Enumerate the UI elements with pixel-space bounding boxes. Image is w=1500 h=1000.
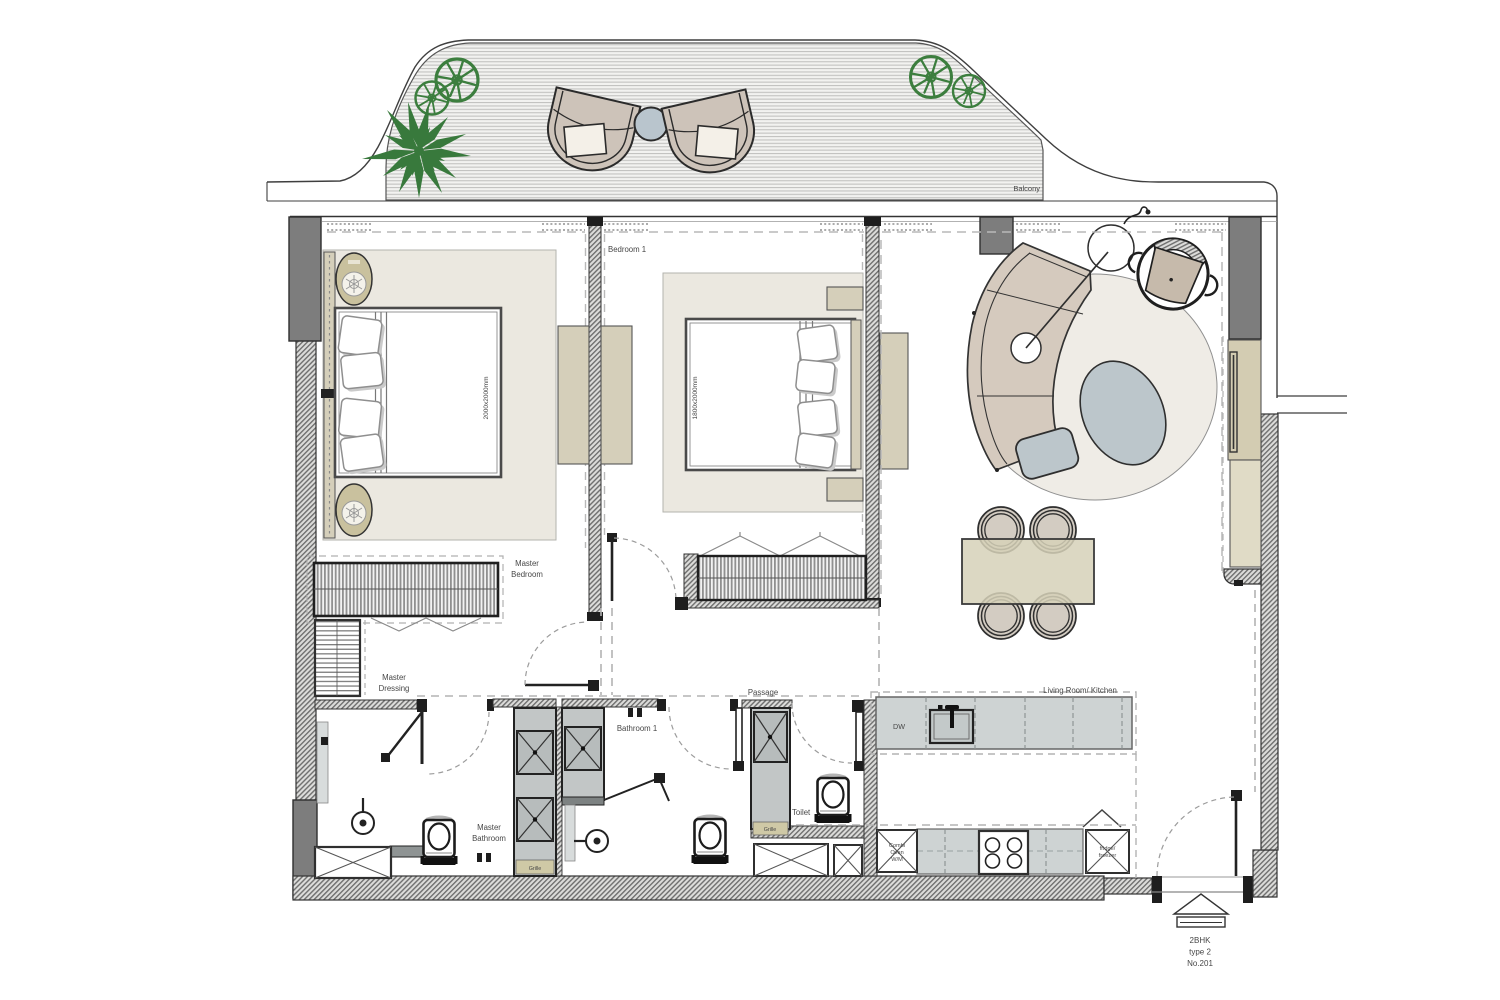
svg-text:freezer: freezer [1099, 853, 1117, 859]
svg-text:Master: Master [515, 559, 539, 568]
svg-text:DW: DW [893, 722, 905, 731]
svg-text:W/M: W/M [891, 857, 903, 863]
svg-text:2BHK: 2BHK [1190, 936, 1212, 945]
svg-text:No.201: No.201 [1187, 959, 1213, 968]
svg-text:Grille: Grille [529, 866, 542, 872]
svg-text:1800x2000mm: 1800x2000mm [692, 377, 699, 420]
svg-text:Living Room/ Kitchen: Living Room/ Kitchen [1043, 686, 1117, 695]
svg-text:type 2: type 2 [1189, 948, 1211, 957]
svg-text:Bedroom: Bedroom [511, 570, 543, 579]
svg-text:Grille: Grille [764, 827, 777, 833]
svg-text:Balcony: Balcony [1013, 184, 1040, 193]
svg-text:Passage: Passage [748, 688, 778, 697]
svg-text:2000x2000mm: 2000x2000mm [483, 377, 490, 420]
svg-text:Bathroom 1: Bathroom 1 [617, 724, 657, 733]
svg-text:Master: Master [382, 673, 406, 682]
svg-text:Combi: Combi [889, 843, 905, 849]
svg-text:Oven: Oven [890, 850, 903, 856]
svg-text:Bedroom 1: Bedroom 1 [608, 245, 646, 254]
svg-text:Dressing: Dressing [379, 684, 410, 693]
svg-text:Toilet: Toilet [792, 808, 811, 817]
svg-text:Master: Master [477, 823, 501, 832]
svg-text:fridge/: fridge/ [1100, 846, 1116, 852]
svg-text:Bathroom: Bathroom [472, 834, 506, 843]
